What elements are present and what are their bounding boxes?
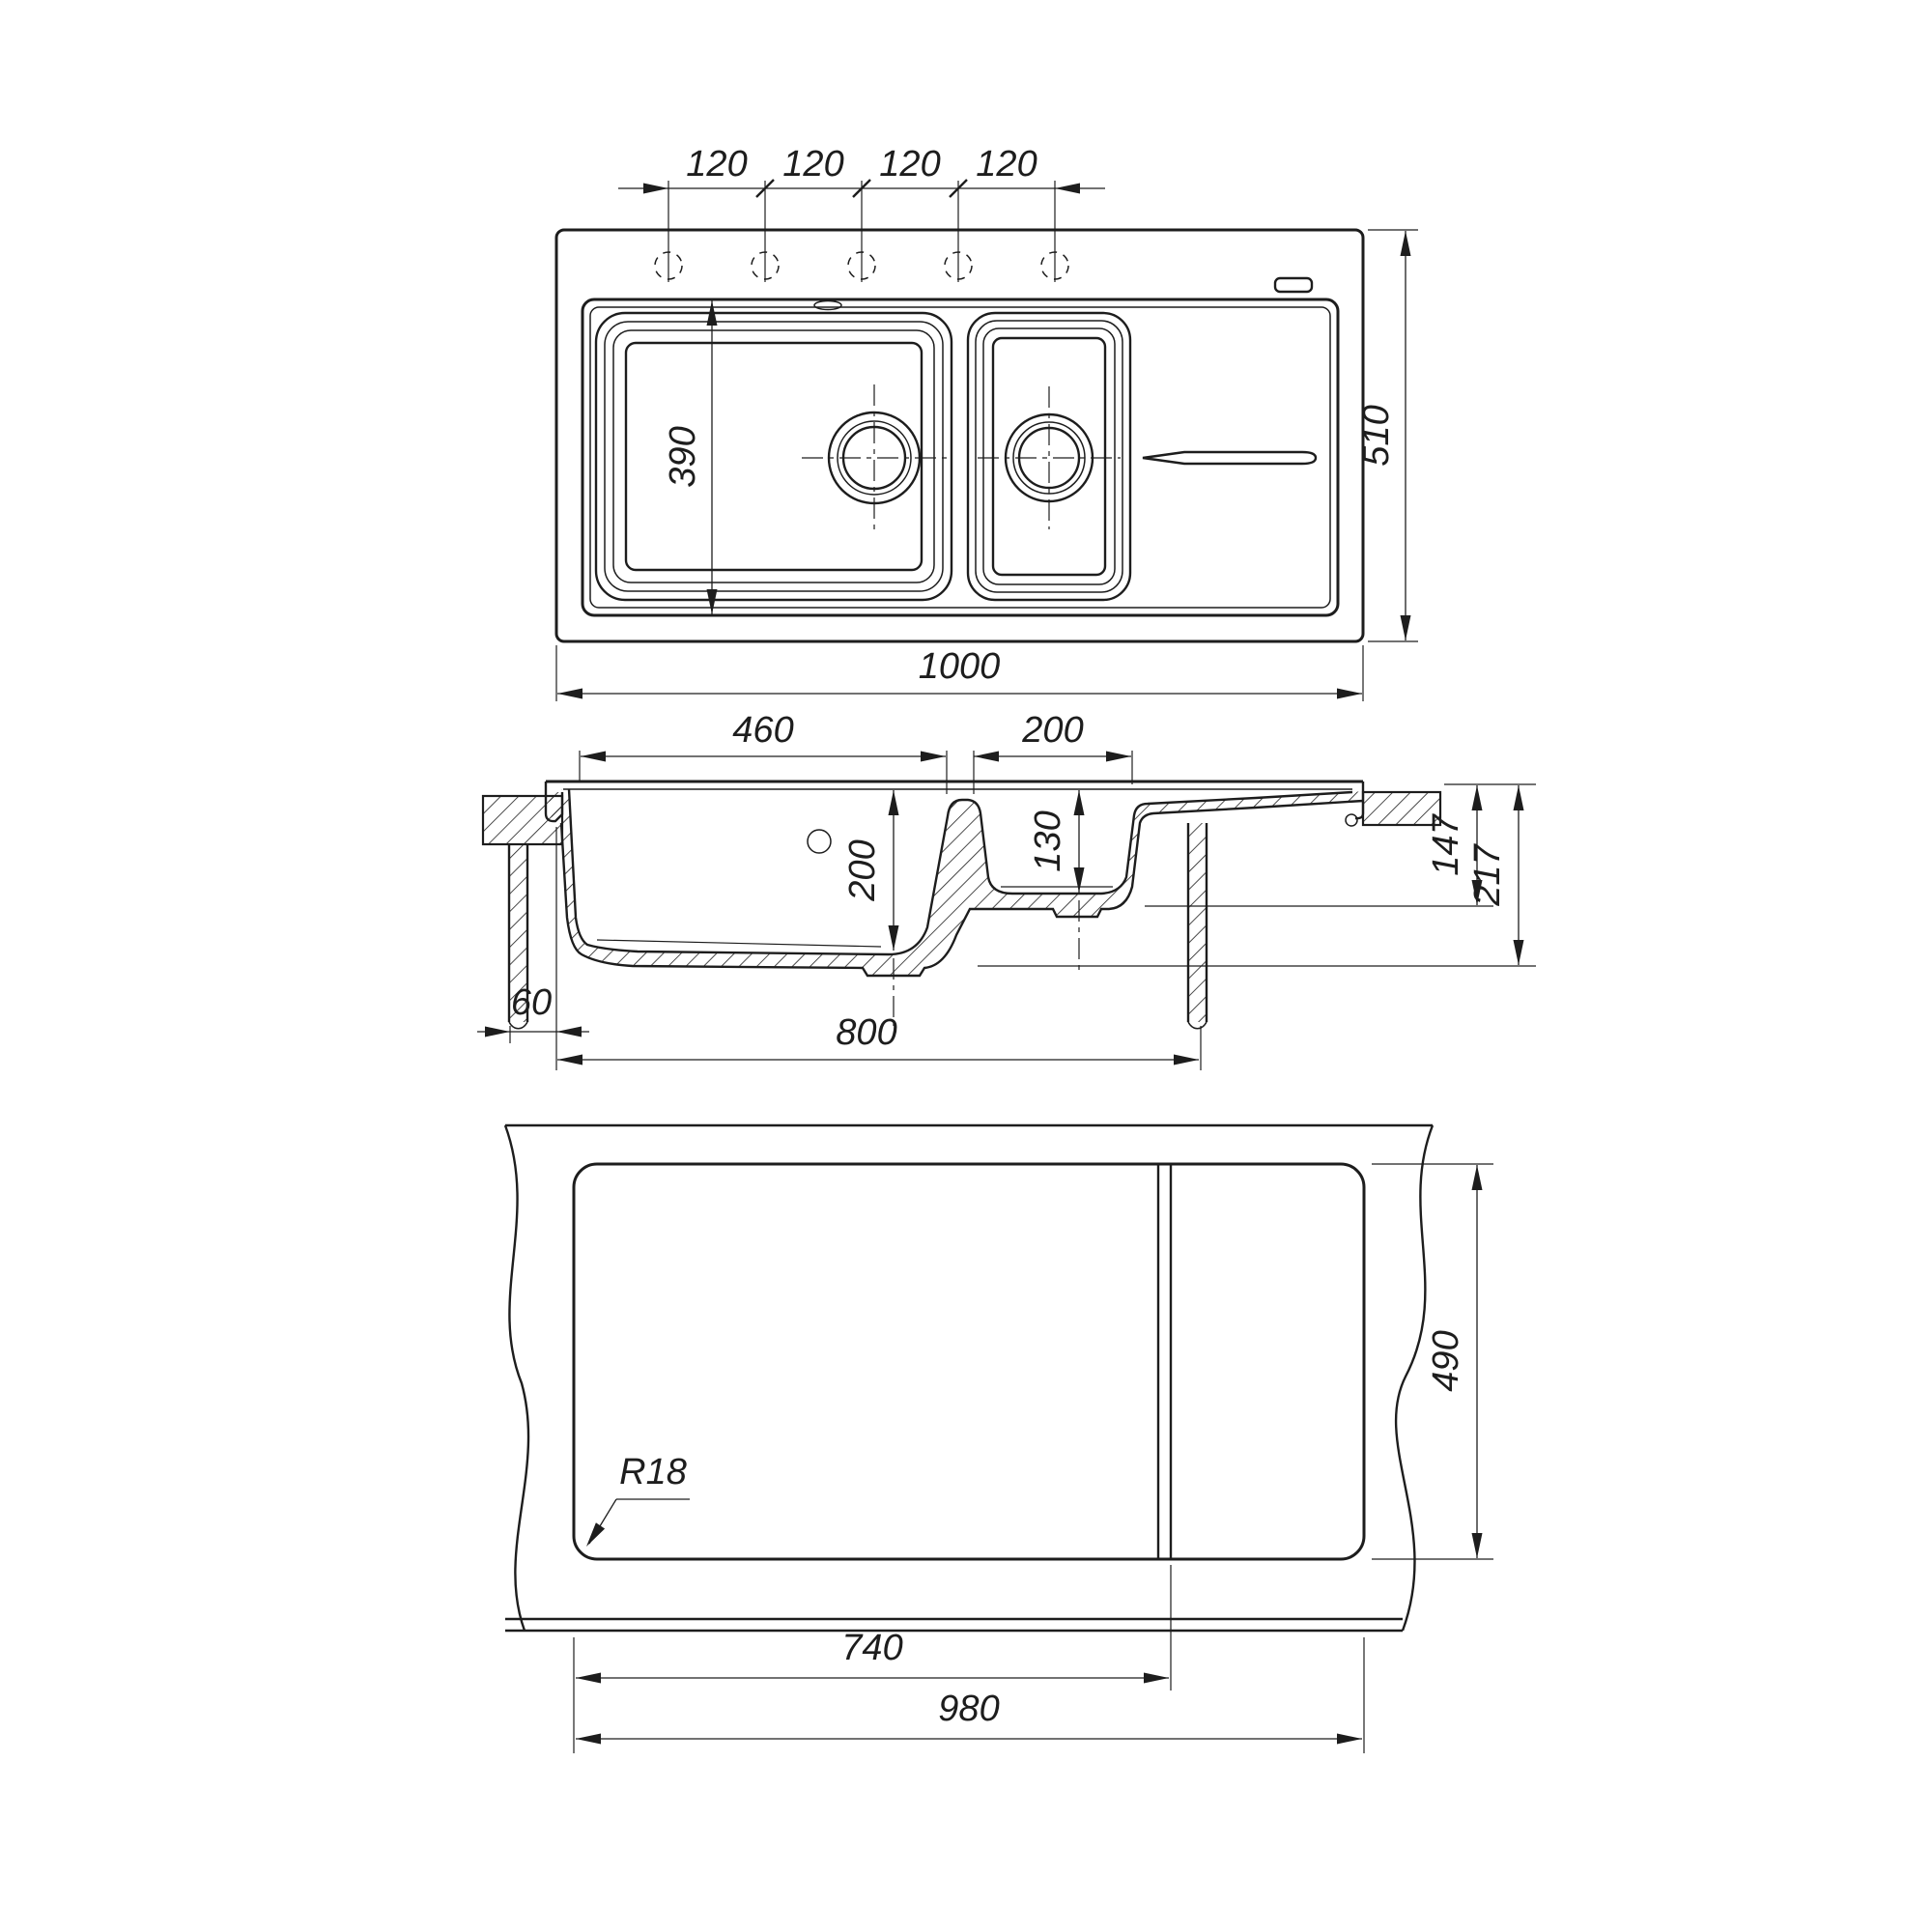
dim-label-120-4: 120: [976, 144, 1037, 185]
dim-label-800: 800: [836, 1012, 896, 1053]
small-bowl: [968, 313, 1130, 600]
cutout-outline: [574, 1164, 1364, 1559]
dim-label-120-3: 120: [879, 144, 940, 185]
top-view: 120 120 120 120 390 510 1: [556, 144, 1418, 701]
dim-label-200-depth: 200: [842, 839, 883, 901]
small-bowl-slope-line: [976, 321, 1122, 592]
dim-label-510: 510: [1356, 405, 1397, 466]
drawing-sheet: 120 120 120 120 390 510 1: [0, 0, 1932, 1932]
dim-cutout-depth: 490: [1372, 1164, 1493, 1559]
sink-technical-drawing: 120 120 120 120 390 510 1: [0, 0, 1932, 1932]
dim-label-740: 740: [841, 1628, 902, 1668]
main-bowl-slope-line: [605, 322, 943, 591]
section-view: 460 200 200 130: [477, 710, 1536, 1070]
small-bowl-bottom-edge: [993, 338, 1105, 575]
sink-material-hatch: [561, 789, 1363, 976]
cutout-view: R18 490 740 980: [505, 1125, 1493, 1753]
overflow-slot: [1275, 278, 1312, 292]
dim-small-bowl-depth: 130: [1028, 790, 1085, 893]
small-drain: [978, 386, 1121, 529]
dim-overall-depth: 510: [1356, 230, 1418, 641]
dim-label-217: 217: [1467, 842, 1508, 906]
dim-label-120-2: 120: [782, 144, 843, 185]
dim-recess-depth: 390: [663, 300, 718, 614]
dim-corner-radius: R18: [586, 1452, 690, 1547]
dim-label-980: 980: [938, 1689, 999, 1729]
bowl-detail-line: [597, 940, 881, 947]
cabinet-wall-right-hatch: [1188, 823, 1207, 1022]
overflow-hole-section: [808, 830, 831, 853]
main-drain: [802, 384, 949, 531]
dim-label-490: 490: [1426, 1330, 1466, 1391]
dim-label-200-width: 200: [1021, 710, 1083, 751]
drainboard-groove: [1143, 452, 1316, 464]
seal-gasket: [1346, 814, 1357, 826]
dim-label-460: 460: [732, 710, 793, 751]
main-bowl: [596, 313, 952, 600]
dim-overall-width: 1000: [556, 645, 1363, 701]
dim-label-r18: R18: [619, 1452, 687, 1492]
break-line: [1188, 1022, 1207, 1029]
main-bowl-slope-line: [613, 330, 934, 582]
dim-label-60: 60: [511, 982, 552, 1023]
bowl-overflow-notch: [814, 301, 841, 310]
main-bowl-top-edge: [596, 313, 952, 600]
small-bowl-slope-line: [983, 328, 1115, 584]
dim-cutout-width: 980: [576, 1637, 1364, 1753]
dim-label-120-1: 120: [686, 144, 747, 185]
dim-label-1000: 1000: [919, 646, 1001, 687]
break-line-left: [505, 1125, 528, 1631]
dim-label-390: 390: [663, 426, 703, 487]
break-line: [509, 1022, 527, 1029]
dim-label-130: 130: [1028, 810, 1068, 871]
dim-cabinet-width: 800: [557, 1012, 1201, 1070]
dim-main-bowl-depth: 200: [842, 790, 899, 951]
dim-hole-spacing: 120 120 120 120: [618, 144, 1105, 282]
dim-step-width: 740: [574, 1565, 1171, 1753]
dim-label-147: 147: [1426, 812, 1466, 875]
